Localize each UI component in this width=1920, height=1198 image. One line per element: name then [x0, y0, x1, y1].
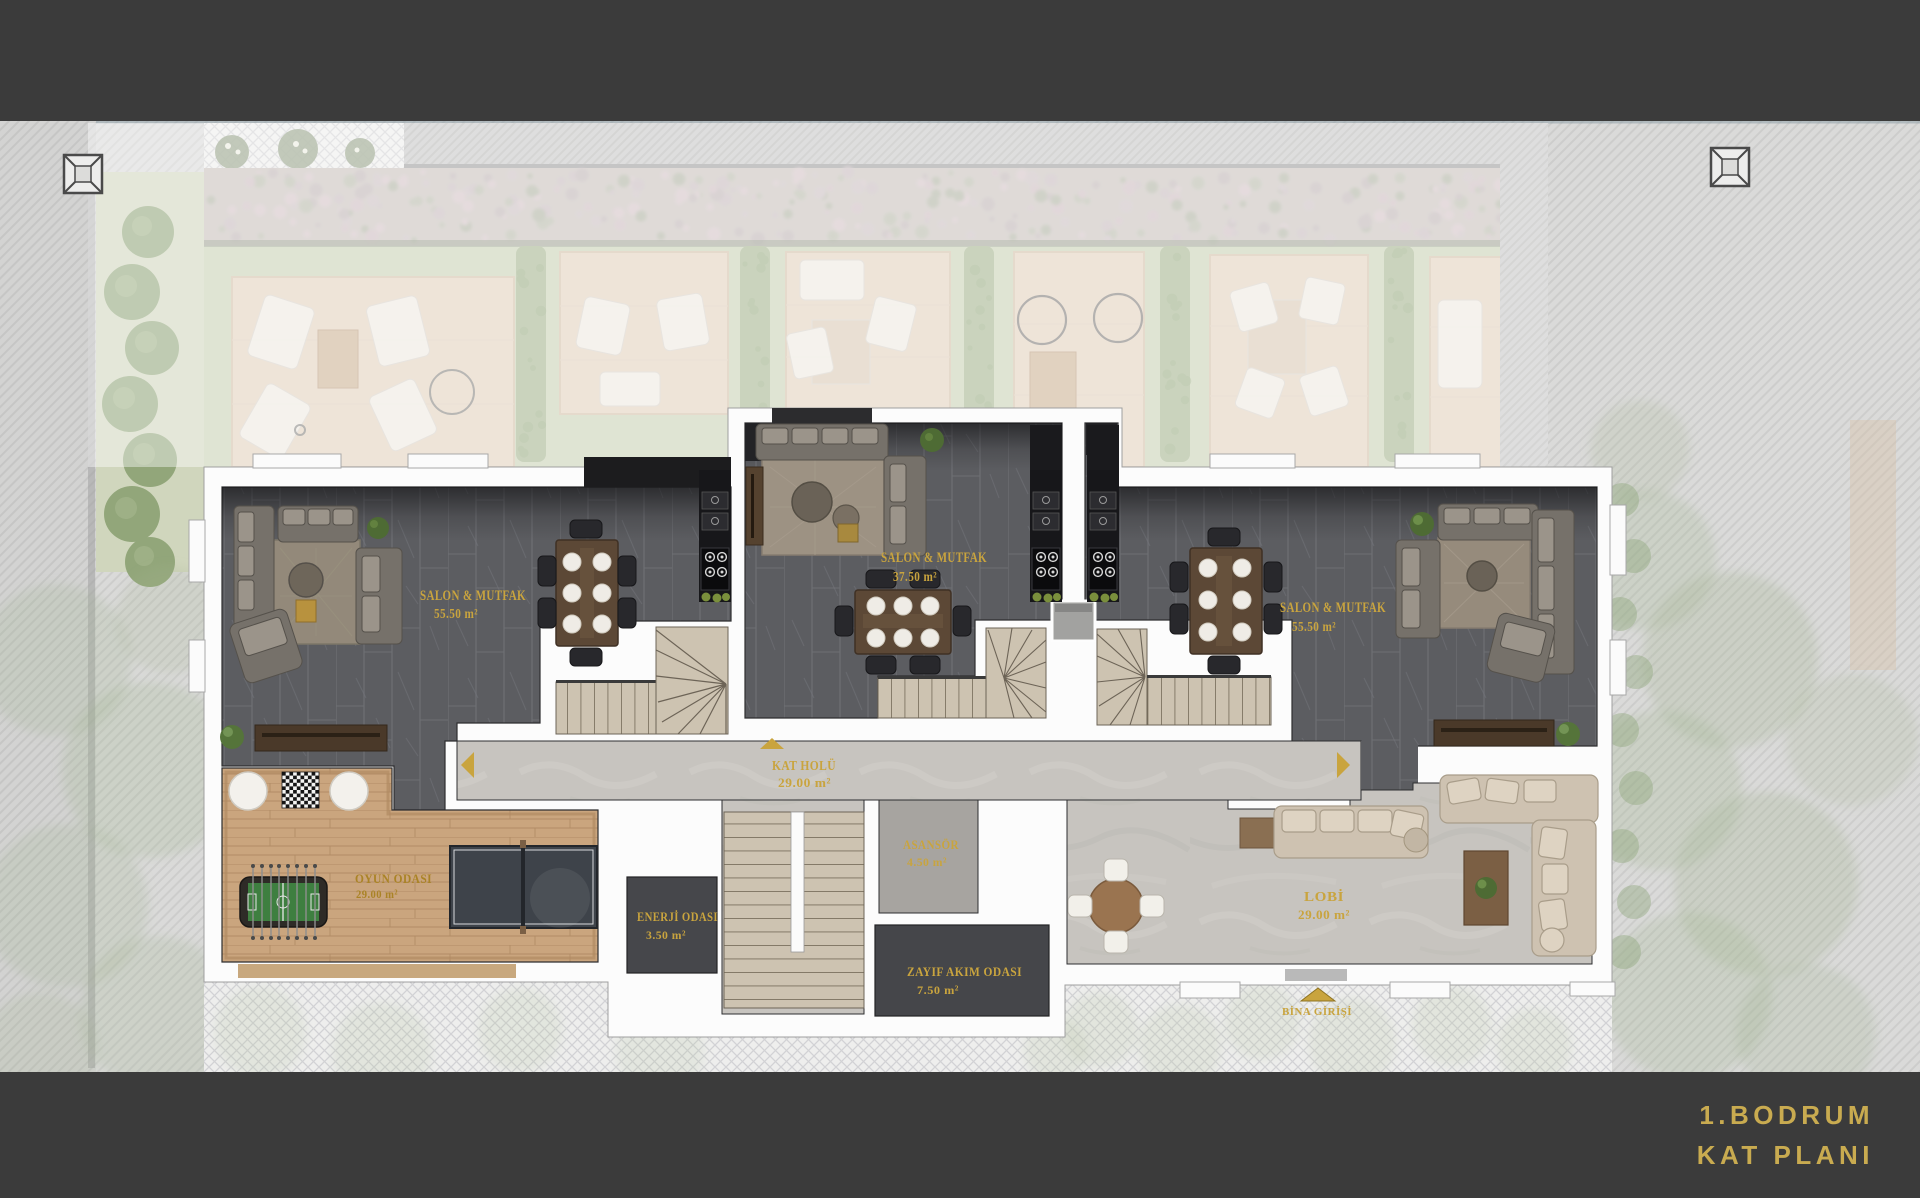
- svg-text:55.50 m²: 55.50 m²: [1292, 619, 1336, 634]
- svg-text:29.00 m²: 29.00 m²: [778, 775, 831, 790]
- svg-text:37.50 m²: 37.50 m²: [893, 569, 937, 584]
- svg-text:55.50 m²: 55.50 m²: [434, 606, 478, 621]
- svg-text:29.00 m²: 29.00 m²: [356, 887, 398, 901]
- svg-text:OYUN ODASI: OYUN ODASI: [355, 871, 432, 886]
- svg-text:KAT PLANI: KAT PLANI: [1697, 1140, 1874, 1170]
- svg-text:ASANSÖR: ASANSÖR: [903, 837, 959, 852]
- svg-text:1.BODRUM: 1.BODRUM: [1699, 1100, 1874, 1130]
- svg-text:3.50 m²: 3.50 m²: [646, 928, 686, 942]
- svg-text:7.50 m²: 7.50 m²: [917, 983, 959, 997]
- svg-text:LOBİ: LOBİ: [1304, 888, 1344, 905]
- svg-text:SALON & MUTFAK: SALON & MUTFAK: [420, 588, 526, 604]
- svg-text:4.50 m²: 4.50 m²: [907, 855, 947, 869]
- svg-text:KAT HOLÜ: KAT HOLÜ: [772, 757, 836, 774]
- svg-text:ENERJİ ODASI: ENERJİ ODASI: [637, 909, 718, 924]
- svg-text:29.00 m²: 29.00 m²: [1298, 907, 1350, 922]
- svg-text:ZAYIF AKIM ODASI: ZAYIF AKIM ODASI: [907, 964, 1022, 979]
- svg-text:SALON & MUTFAK: SALON & MUTFAK: [881, 550, 987, 566]
- svg-text:SALON & MUTFAK: SALON & MUTFAK: [1280, 600, 1386, 616]
- svg-text:BİNA GİRİŞİ: BİNA GİRİŞİ: [1282, 1006, 1352, 1018]
